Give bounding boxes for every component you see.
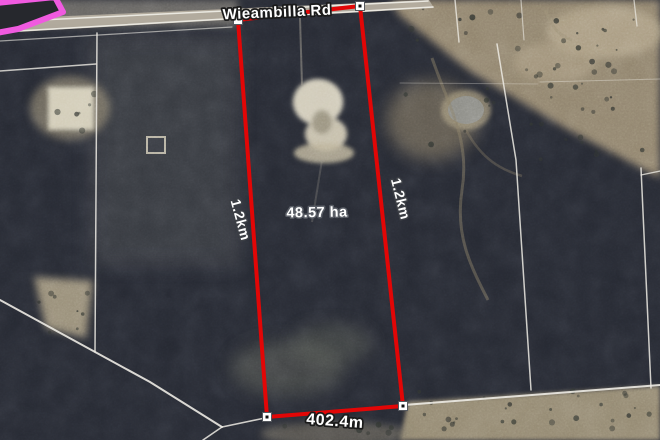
boundary-handle-bottom-left[interactable] bbox=[263, 413, 272, 422]
boundary-handle-bottom-right[interactable] bbox=[399, 402, 408, 411]
area-label: 48.57 ha bbox=[286, 204, 348, 221]
map-canvas[interactable]: Wieambilla Rd 48.57 ha 1.2km 1.2km 402.4… bbox=[0, 0, 660, 440]
boundary-handle-top-right[interactable] bbox=[356, 2, 365, 11]
satellite-map-view[interactable]: Wieambilla Rd 48.57 ha 1.2km 1.2km 402.4… bbox=[0, 0, 660, 440]
